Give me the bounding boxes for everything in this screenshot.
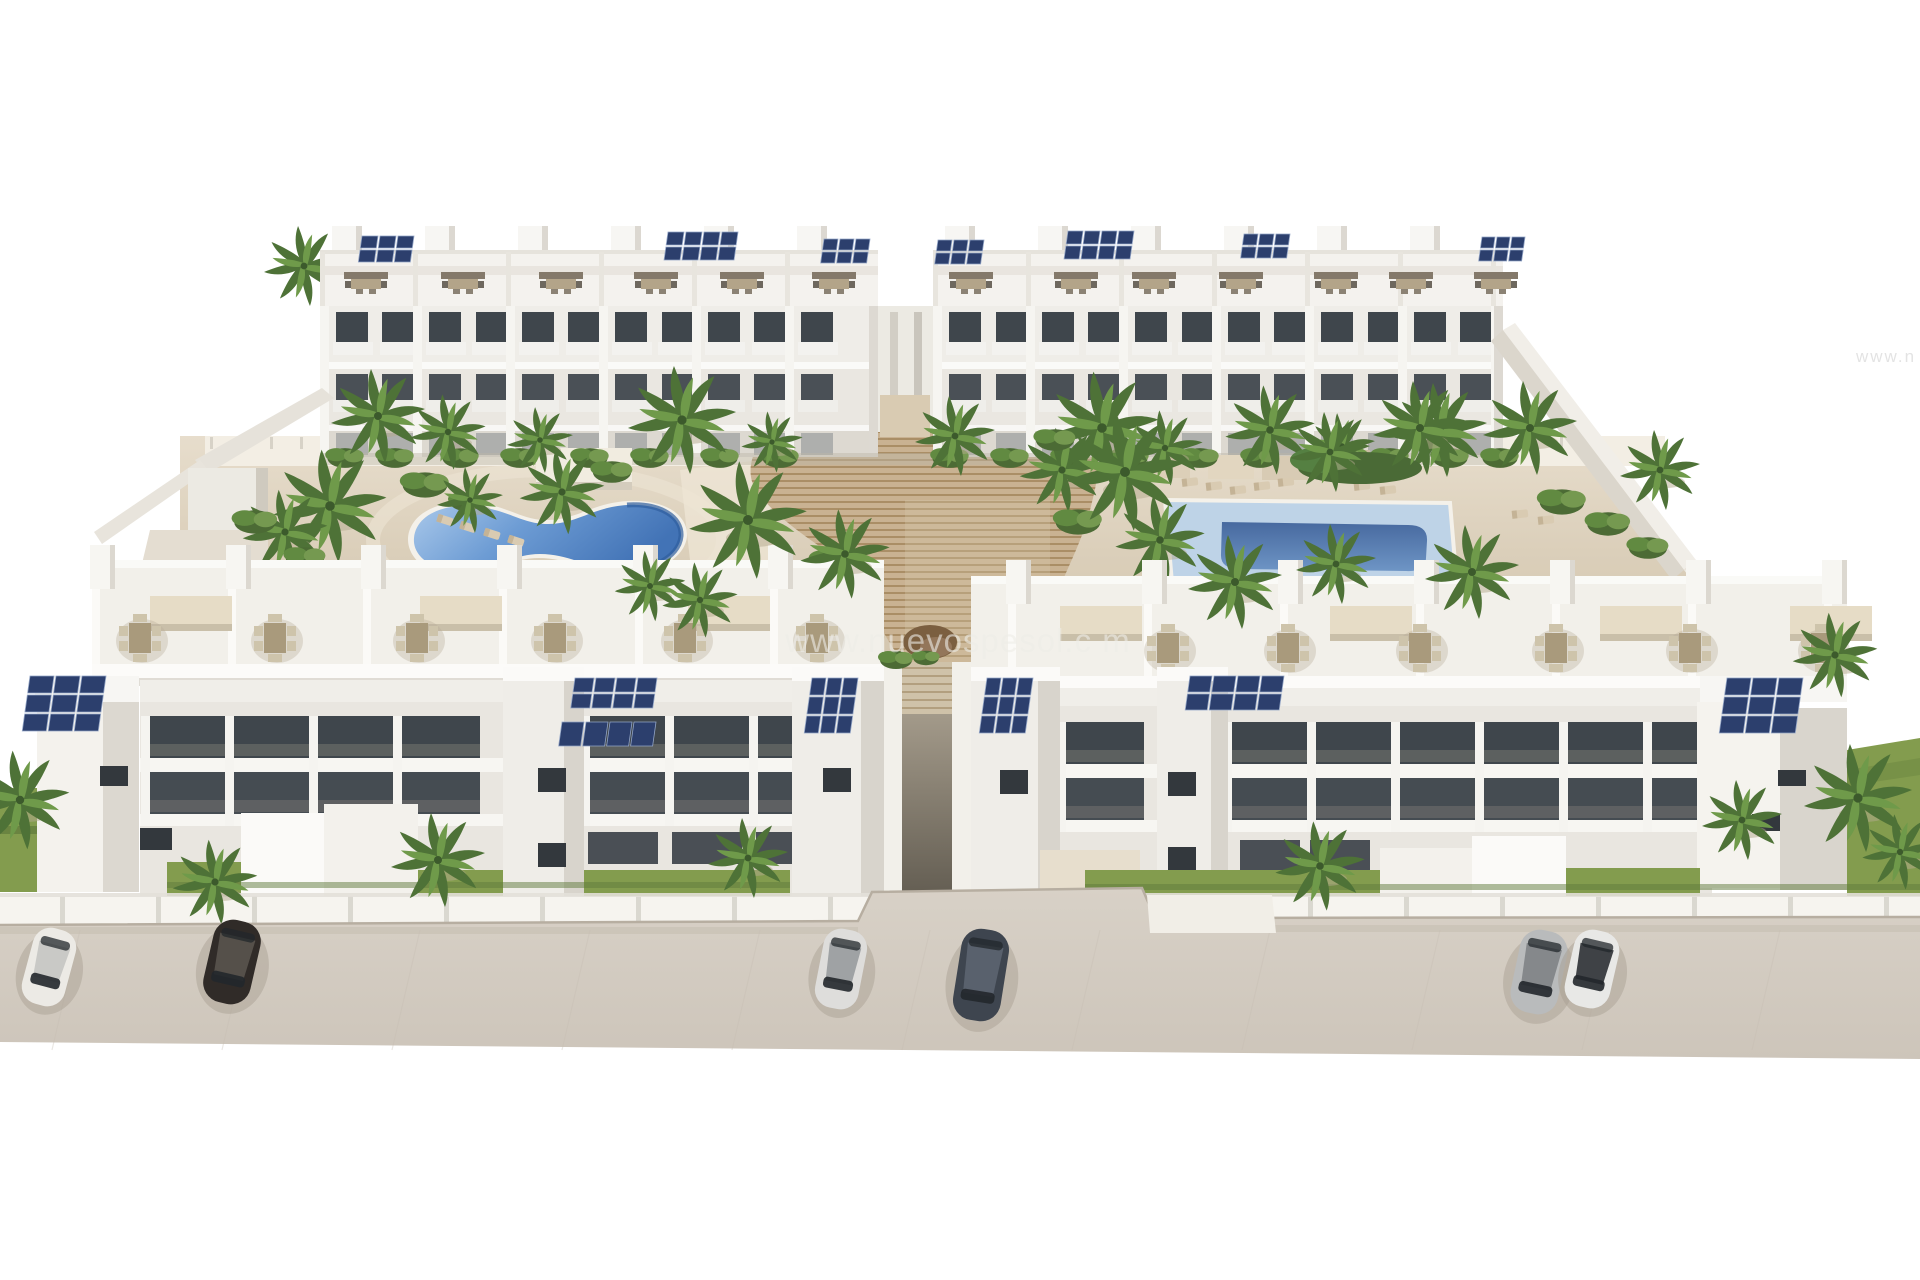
svg-text:www.nuevospesol.c m: www.nuevospesol.c m [784, 622, 1130, 659]
svg-text:www.n: www.n [1855, 347, 1916, 366]
